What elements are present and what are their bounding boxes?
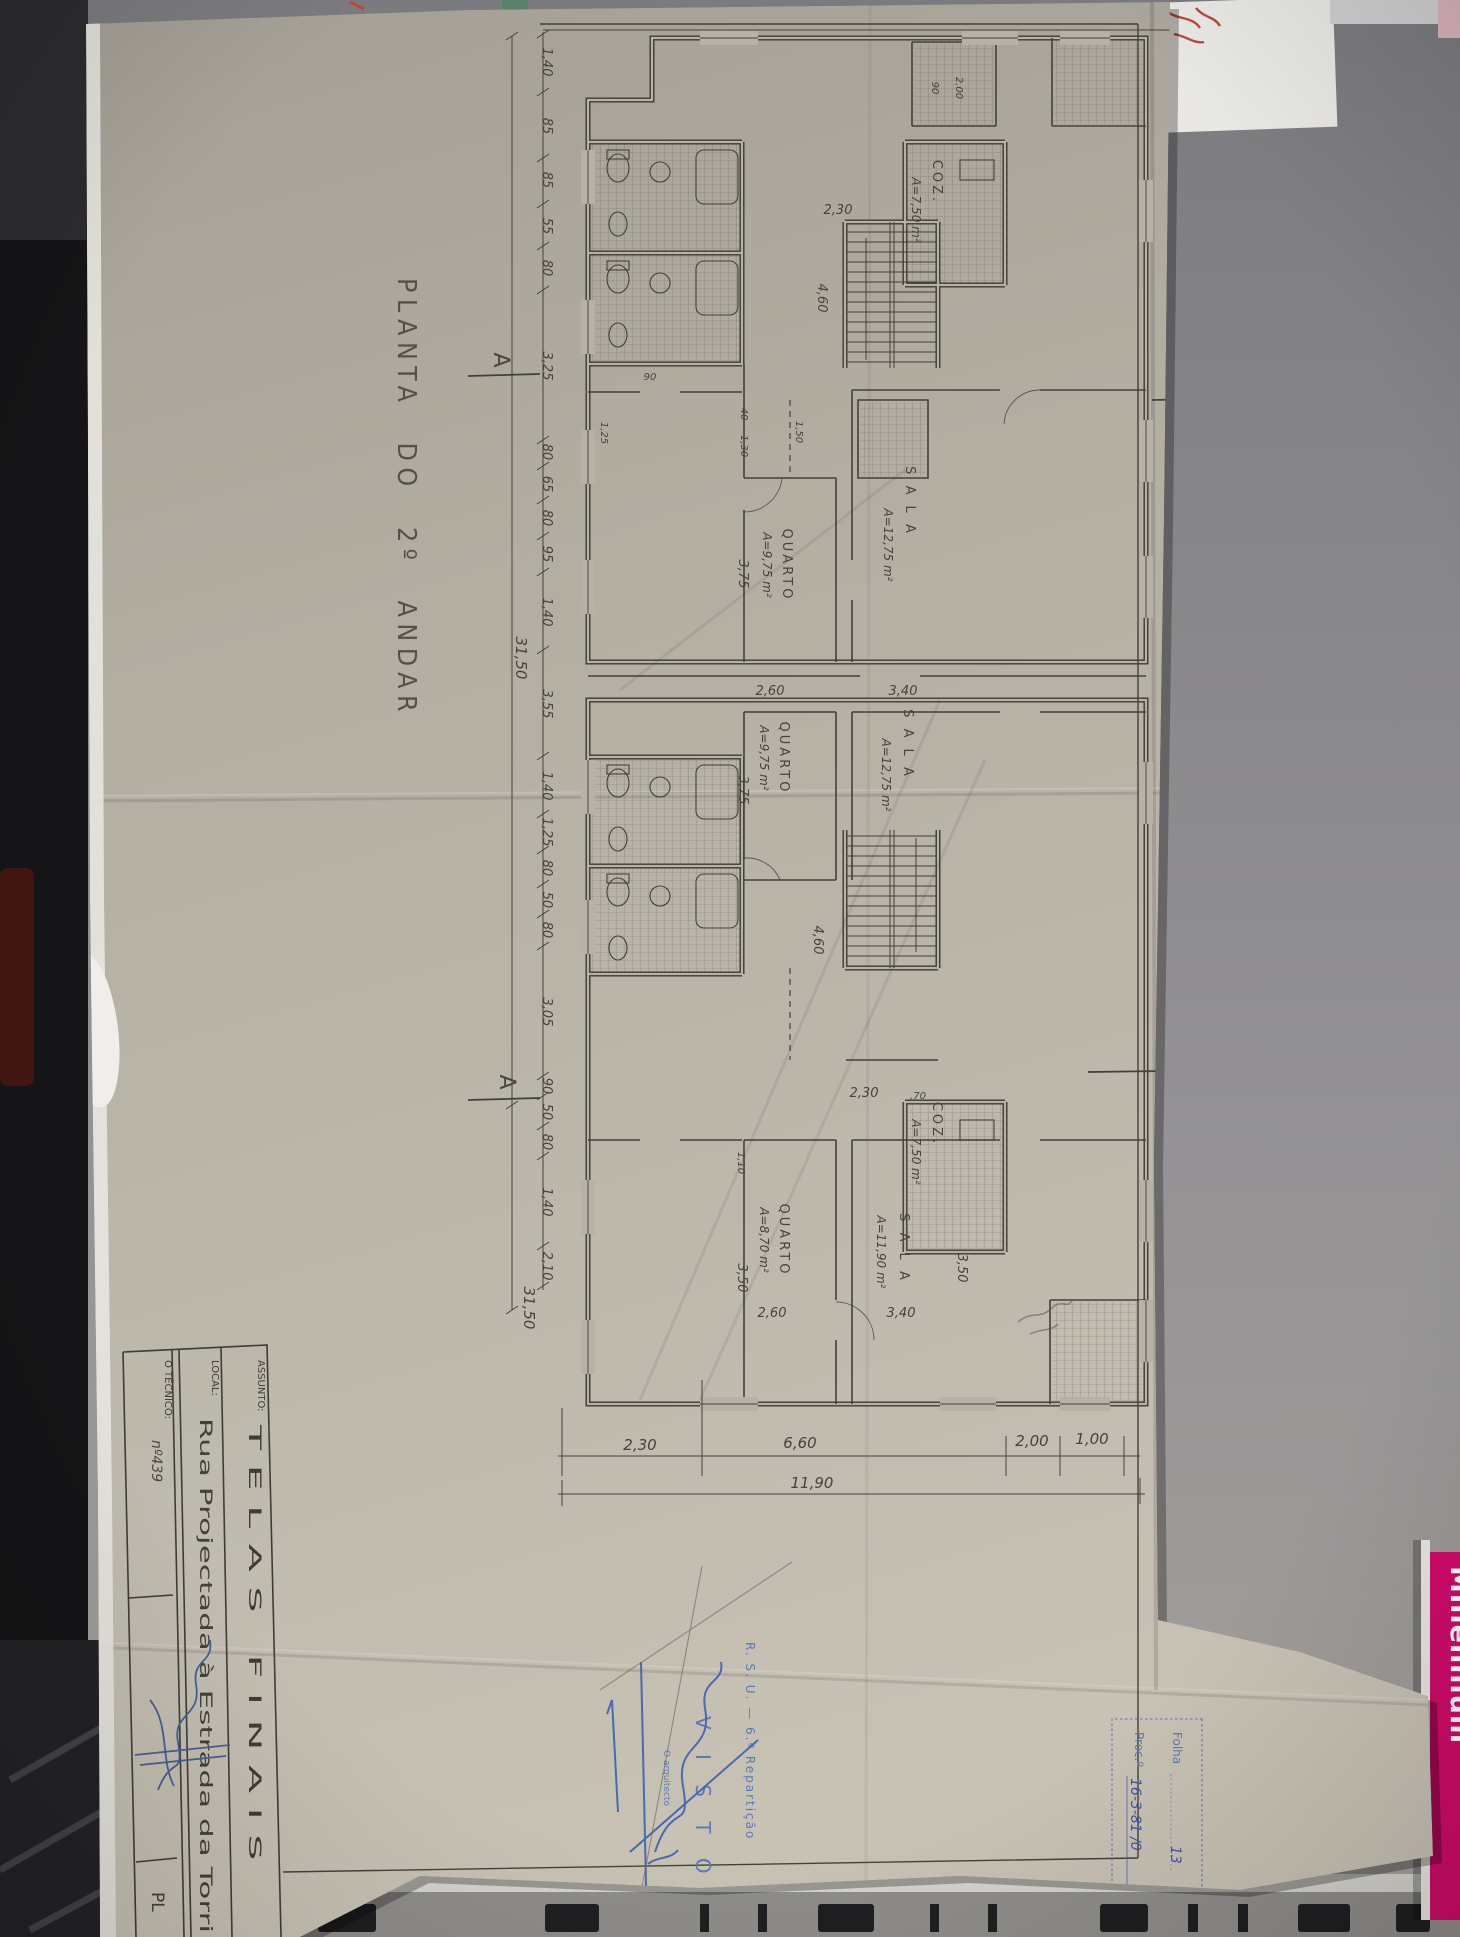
photo-vignette (0, 0, 1460, 1937)
photo-of-blueprint: Millennium (0, 0, 1460, 1937)
